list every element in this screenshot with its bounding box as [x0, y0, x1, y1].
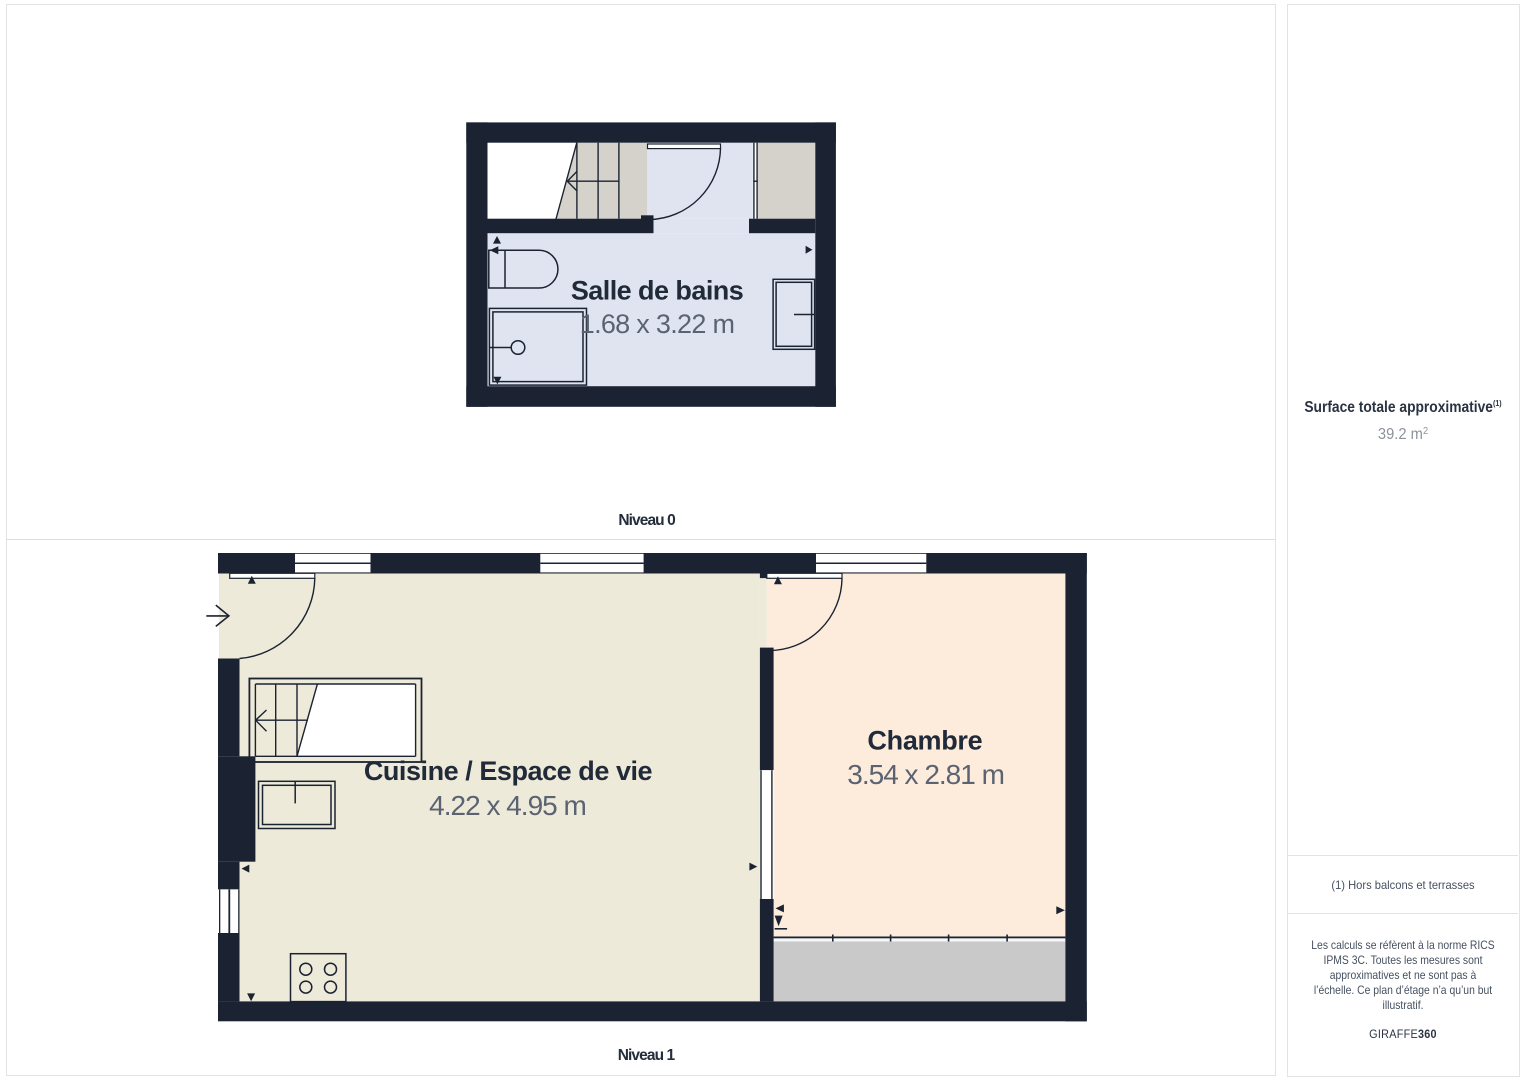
svg-text:Salle de bains: Salle de bains — [571, 276, 743, 306]
svg-text:Niveau 0: Niveau 0 — [618, 512, 675, 529]
svg-text:Chambre: Chambre — [867, 726, 982, 756]
svg-text:4.22 x 4.95 m: 4.22 x 4.95 m — [429, 790, 586, 821]
svg-text:Cuisine / Espace de vie: Cuisine / Espace de vie — [364, 756, 653, 786]
svg-text:Niveau 1: Niveau 1 — [618, 1047, 676, 1064]
svg-text:1.68 x 3.22 m: 1.68 x 3.22 m — [580, 309, 735, 339]
svg-text:3.54 x 2.81 m: 3.54 x 2.81 m — [847, 759, 1004, 790]
